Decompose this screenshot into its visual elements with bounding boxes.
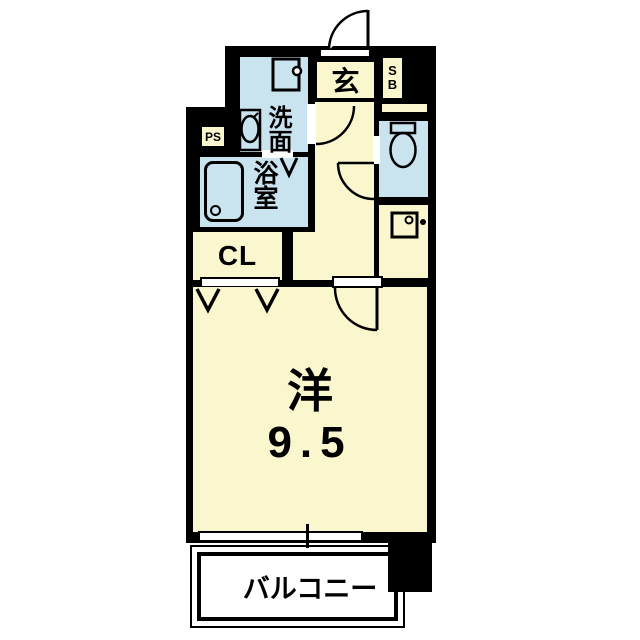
pipe-space-label: PS	[202, 127, 224, 146]
entrance-door-arc-icon	[329, 10, 368, 50]
shoe-box-label-b: B	[388, 78, 397, 92]
sliding-window-icon	[198, 531, 363, 542]
bathroom-label: 浴室	[250, 160, 277, 210]
entrance-threshold	[319, 48, 371, 58]
entrance-label: 玄	[317, 62, 374, 98]
shoe-box-label: S B	[383, 58, 402, 98]
toilet-door-opening	[373, 136, 380, 164]
bathtub-drain	[210, 205, 221, 216]
western-room-size: 9.5	[268, 417, 353, 469]
kitchen-nook	[379, 205, 428, 278]
bathtub-icon	[204, 161, 244, 222]
hallway	[315, 102, 374, 280]
washroom-label: 洗面	[264, 105, 290, 153]
hallway-lower	[293, 232, 315, 280]
floor-plan: バルコニー 洗面 玄 S B 浴室 PS CL 洋 9.5	[0, 0, 640, 640]
western-room-label: 洋	[287, 365, 333, 417]
washroom-door-opening	[307, 104, 316, 144]
western-room-label-group: 洋 9.5	[193, 287, 427, 532]
closet-label: CL	[193, 232, 282, 280]
entrance-shelf	[382, 104, 427, 112]
shoe-box-label-s: S	[388, 64, 397, 78]
balcony-label: バルコニー	[201, 556, 405, 616]
toilet-room	[379, 121, 428, 197]
